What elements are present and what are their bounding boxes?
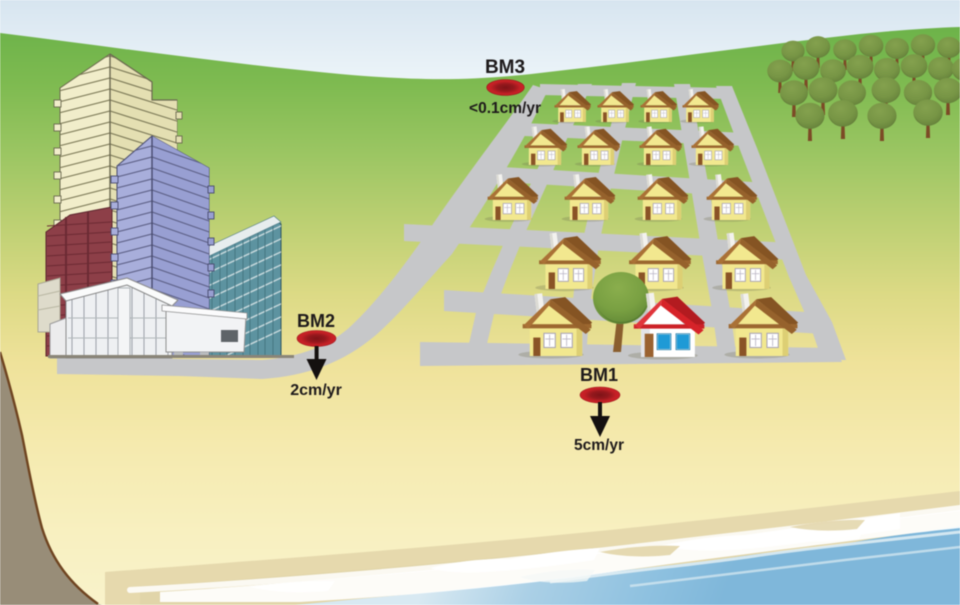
svg-text:<0.1cm/yr: <0.1cm/yr: [469, 100, 541, 117]
svg-text:2cm/yr: 2cm/yr: [290, 382, 342, 399]
svg-text:BM3: BM3: [485, 57, 525, 78]
svg-text:5cm/yr: 5cm/yr: [574, 437, 624, 454]
svg-text:BM2: BM2: [297, 311, 335, 331]
svg-text:BM1: BM1: [580, 365, 618, 385]
